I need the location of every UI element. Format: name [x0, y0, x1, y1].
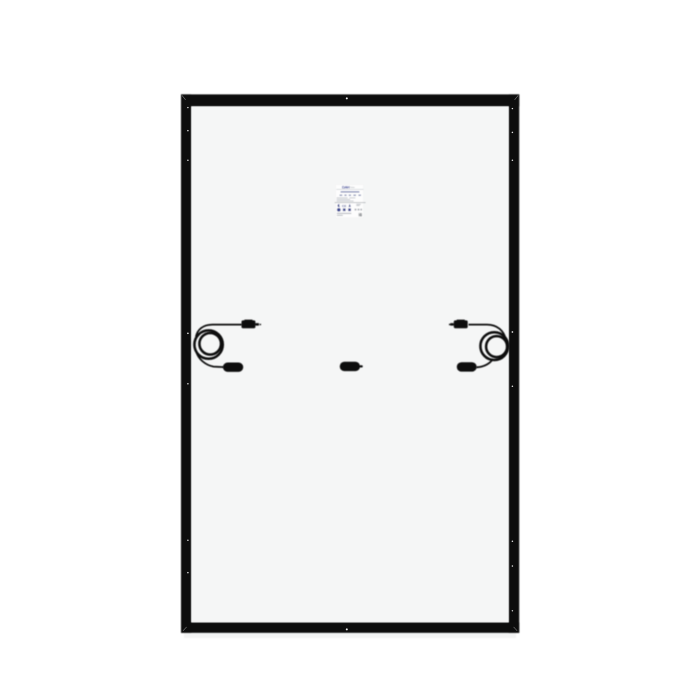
svg-text:CE: CE: [342, 204, 346, 208]
svg-text:DAH: DAH: [342, 184, 350, 189]
svg-text:Solar: Solar: [350, 186, 355, 189]
